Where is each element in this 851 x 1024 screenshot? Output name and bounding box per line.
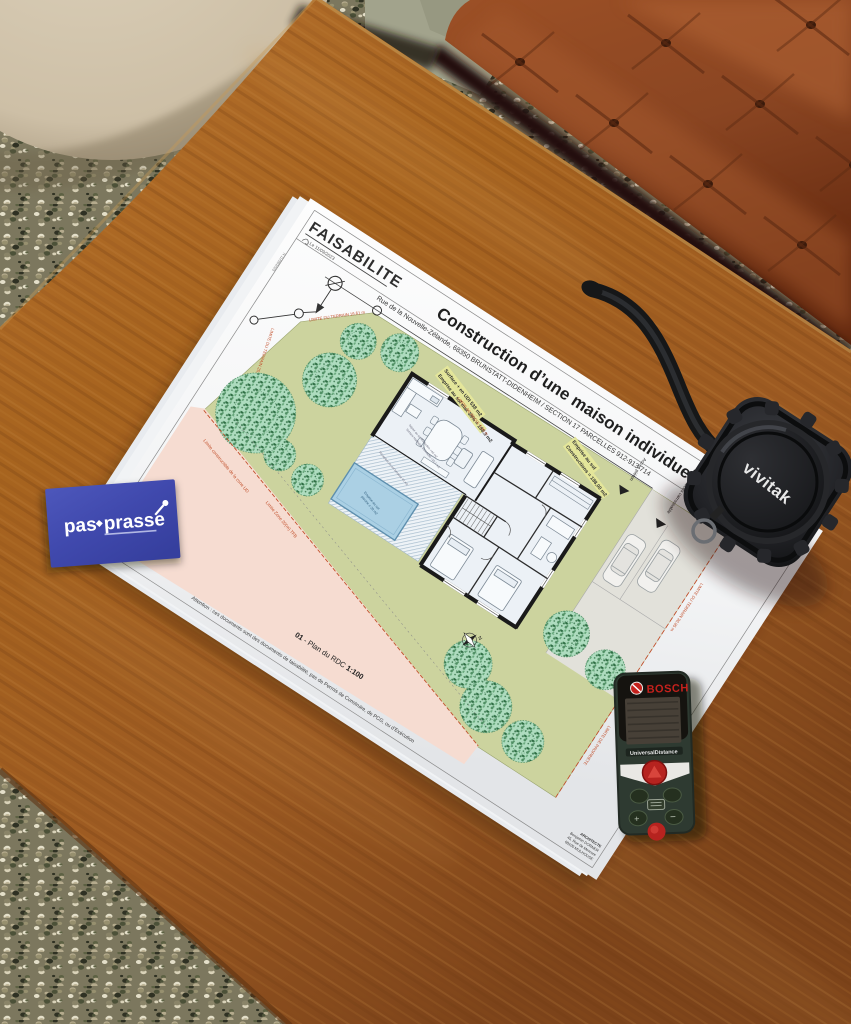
svg-text:−: −: [670, 812, 676, 823]
svg-text:pas: pas: [63, 514, 97, 537]
svg-text:BOSCH: BOSCH: [646, 682, 689, 695]
svg-text:+: +: [634, 814, 640, 824]
